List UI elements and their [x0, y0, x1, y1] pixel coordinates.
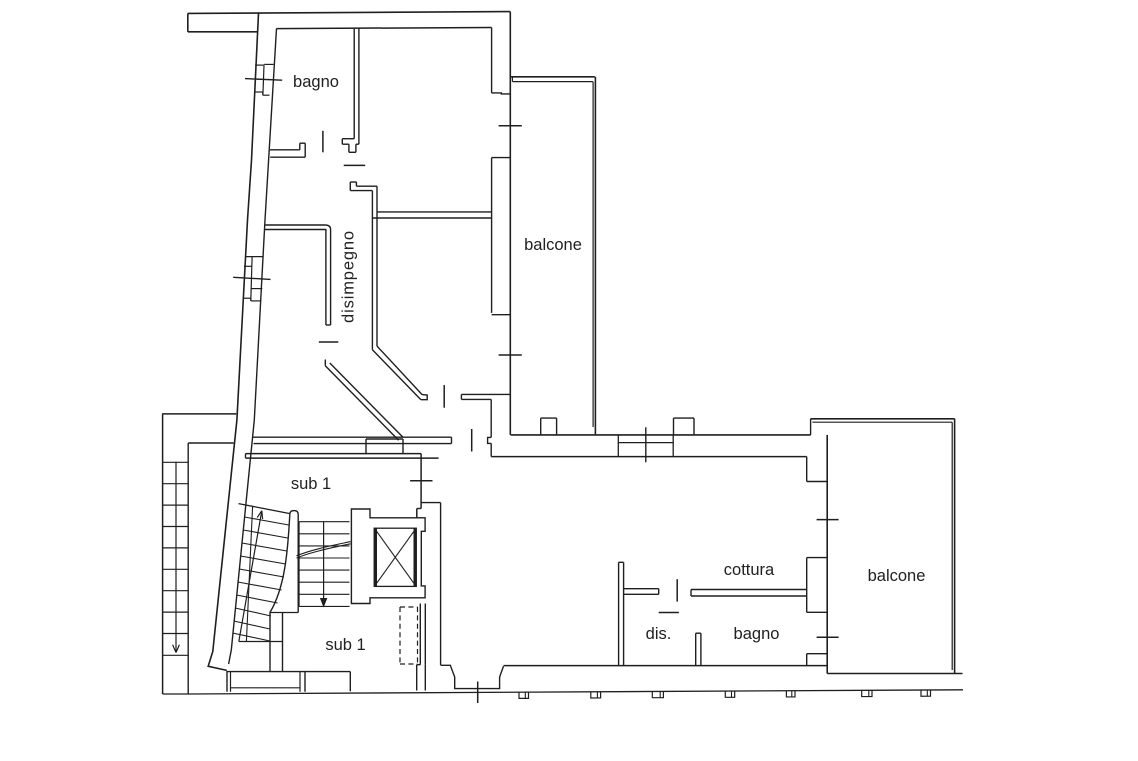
svg-text:bagno: bagno: [734, 625, 780, 643]
svg-text:balcone: balcone: [524, 236, 582, 254]
svg-text:balcone: balcone: [868, 567, 926, 585]
svg-text:sub 1: sub 1: [291, 475, 331, 493]
svg-text:disimpegno: disimpegno: [340, 230, 358, 323]
svg-text:bagno: bagno: [293, 73, 339, 91]
svg-text:cottura: cottura: [724, 561, 775, 579]
svg-text:dis.: dis.: [646, 625, 672, 643]
svg-text:sub 1: sub 1: [325, 636, 365, 654]
